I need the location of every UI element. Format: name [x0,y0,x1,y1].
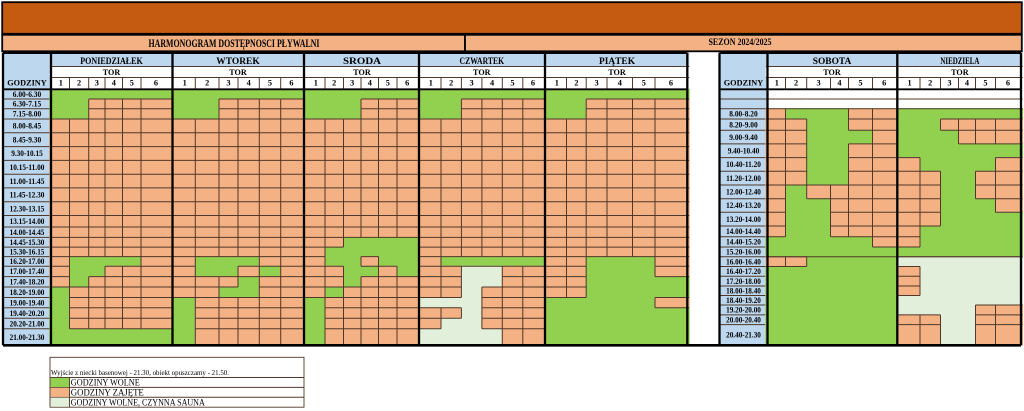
svg-text:2: 2 [332,79,336,88]
svg-text:HARMONOGRAM DOSTĘPNOSCI PŁYWAL: HARMONOGRAM DOSTĘPNOSCI PŁYWALNI [149,38,320,50]
svg-text:14.00-14.40: 14.00-14.40 [726,227,761,236]
svg-text:3: 3 [470,79,474,88]
svg-text:3: 3 [947,79,951,88]
svg-text:2: 2 [574,79,578,88]
svg-text:CZWARTEK: CZWARTEK [460,56,505,67]
svg-text:11.00-11.45: 11.00-11.45 [10,177,45,186]
svg-text:WTOREK: WTOREK [216,56,260,67]
svg-text:3: 3 [817,79,821,88]
svg-text:5: 5 [130,79,134,88]
svg-text:6.30-7.15: 6.30-7.15 [13,100,41,109]
svg-text:11.45-12.30: 11.45-12.30 [10,191,45,200]
svg-text:7.15-8.00: 7.15-8.00 [13,110,41,119]
svg-text:14.40-15.20: 14.40-15.20 [726,238,761,247]
svg-text:5: 5 [510,79,514,88]
svg-text:6.00-6.30: 6.00-6.30 [13,90,41,99]
svg-text:5: 5 [642,79,646,88]
svg-text:1: 1 [775,79,779,88]
svg-text:13.20-14.00: 13.20-14.00 [726,215,761,224]
svg-text:20.20-21.00: 20.20-21.00 [10,319,45,328]
svg-text:6: 6 [405,79,409,88]
svg-text:2: 2 [205,79,209,88]
svg-text:15.30-16.15: 15.30-16.15 [10,248,45,257]
svg-text:GODZINY: GODZINY [724,78,764,87]
svg-text:TOR: TOR [353,67,371,77]
svg-text:SEZON 2024/2025: SEZON 2024/2025 [709,37,772,47]
svg-text:3: 3 [226,79,230,88]
svg-text:17.20-18.00: 17.20-18.00 [726,277,761,286]
svg-text:12.00-12.40: 12.00-12.40 [726,188,761,197]
svg-text:6: 6 [289,79,293,88]
svg-text:TOR: TOR [103,67,121,77]
svg-text:NIEDZIELA: NIEDZIELA [940,56,979,67]
svg-text:8.45-9.30: 8.45-9.30 [13,135,41,144]
svg-text:16.40-17.20: 16.40-17.20 [726,267,761,276]
svg-text:TOR: TOR [951,67,969,77]
svg-text:3: 3 [595,79,599,88]
svg-text:2: 2 [449,79,453,88]
svg-text:2: 2 [77,79,81,88]
svg-text:13.15-14.00: 13.15-14.00 [10,217,45,226]
svg-text:21.00-21.30: 21.00-21.30 [10,333,45,342]
svg-text:15.20-16.00: 15.20-16.00 [726,248,761,257]
svg-text:4: 4 [247,79,251,88]
svg-text:18.40-19.20: 18.40-19.20 [726,296,761,305]
svg-text:Wyjście z niecki basenowej - 2: Wyjście z niecki basenowej - 21.30, obie… [51,368,229,377]
svg-text:9.00-9.40: 9.00-9.40 [729,133,757,142]
svg-text:6: 6 [531,79,535,88]
svg-text:4: 4 [490,79,494,88]
svg-text:TOR: TOR [823,67,841,77]
svg-text:4: 4 [618,79,622,88]
svg-text:GODZINY WOLNE, CZYNNA SAUNA: GODZINY WOLNE, CZYNNA SAUNA [71,397,205,408]
svg-text:17.00-17.40: 17.00-17.40 [10,267,45,276]
svg-text:14.45-15.30: 14.45-15.30 [10,238,45,247]
svg-text:12.40-13.20: 12.40-13.20 [726,201,761,210]
svg-text:19.40-20.20: 19.40-20.20 [10,309,45,318]
svg-text:3: 3 [95,79,99,88]
svg-text:6: 6 [669,79,673,88]
svg-text:2: 2 [794,79,798,88]
svg-text:4: 4 [965,79,969,88]
svg-text:1: 1 [314,79,318,88]
svg-text:1: 1 [908,79,912,88]
svg-text:TOR: TOR [608,67,626,77]
svg-text:TOR: TOR [473,67,491,77]
svg-text:20.40-21.30: 20.40-21.30 [726,331,761,340]
svg-text:10.40-11.20: 10.40-11.20 [726,160,761,169]
svg-text:14.00-14.45: 14.00-14.45 [10,228,45,237]
svg-text:10.15-11.00: 10.15-11.00 [10,163,45,172]
svg-text:5: 5 [858,79,862,88]
svg-text:6: 6 [154,79,158,88]
svg-text:GODZINY: GODZINY [7,78,47,87]
svg-text:6: 6 [1006,79,1010,88]
svg-text:PIĄTEK: PIĄTEK [599,56,635,67]
svg-text:18.00-18.40: 18.00-18.40 [726,287,761,296]
svg-text:2: 2 [928,79,932,88]
svg-text:9.40-10.40: 9.40-10.40 [728,147,760,156]
svg-text:SRODA: SRODA [343,56,381,67]
svg-text:8.00-8.20: 8.00-8.20 [729,110,757,119]
svg-text:4: 4 [837,79,841,88]
svg-text:9.30-10.15: 9.30-10.15 [11,149,43,158]
svg-text:4: 4 [368,79,372,88]
svg-text:19.20-20.00: 19.20-20.00 [726,306,761,315]
svg-text:17.40-18.20: 17.40-18.20 [10,278,45,287]
svg-text:6: 6 [882,79,886,88]
svg-text:TOR: TOR [229,67,247,77]
svg-text:18.20-19.00: 18.20-19.00 [10,288,45,297]
svg-text:1: 1 [183,79,187,88]
svg-text:1: 1 [429,79,433,88]
svg-text:SOBOTA: SOBOTA [813,56,852,67]
svg-text:5: 5 [983,79,987,88]
svg-text:1: 1 [555,79,559,88]
svg-text:4: 4 [112,79,116,88]
svg-text:1: 1 [59,79,63,88]
svg-text:16.00-16.40: 16.00-16.40 [726,257,761,266]
svg-text:11.20-12.00: 11.20-12.00 [726,174,761,183]
svg-text:5: 5 [268,79,272,88]
svg-text:19.00-19.40: 19.00-19.40 [10,298,45,307]
svg-text:20.00-20.40: 20.00-20.40 [726,316,761,325]
svg-text:PONIEDZIAŁEK: PONIEDZIAŁEK [80,56,143,67]
svg-text:8.00-8.45: 8.00-8.45 [13,122,41,131]
svg-text:12.30-13.15: 12.30-13.15 [10,204,45,213]
svg-text:16.20-17.00: 16.20-17.00 [10,257,45,266]
svg-text:5: 5 [386,79,390,88]
svg-text:8.20-9.00: 8.20-9.00 [729,120,757,129]
svg-text:3: 3 [350,79,354,88]
